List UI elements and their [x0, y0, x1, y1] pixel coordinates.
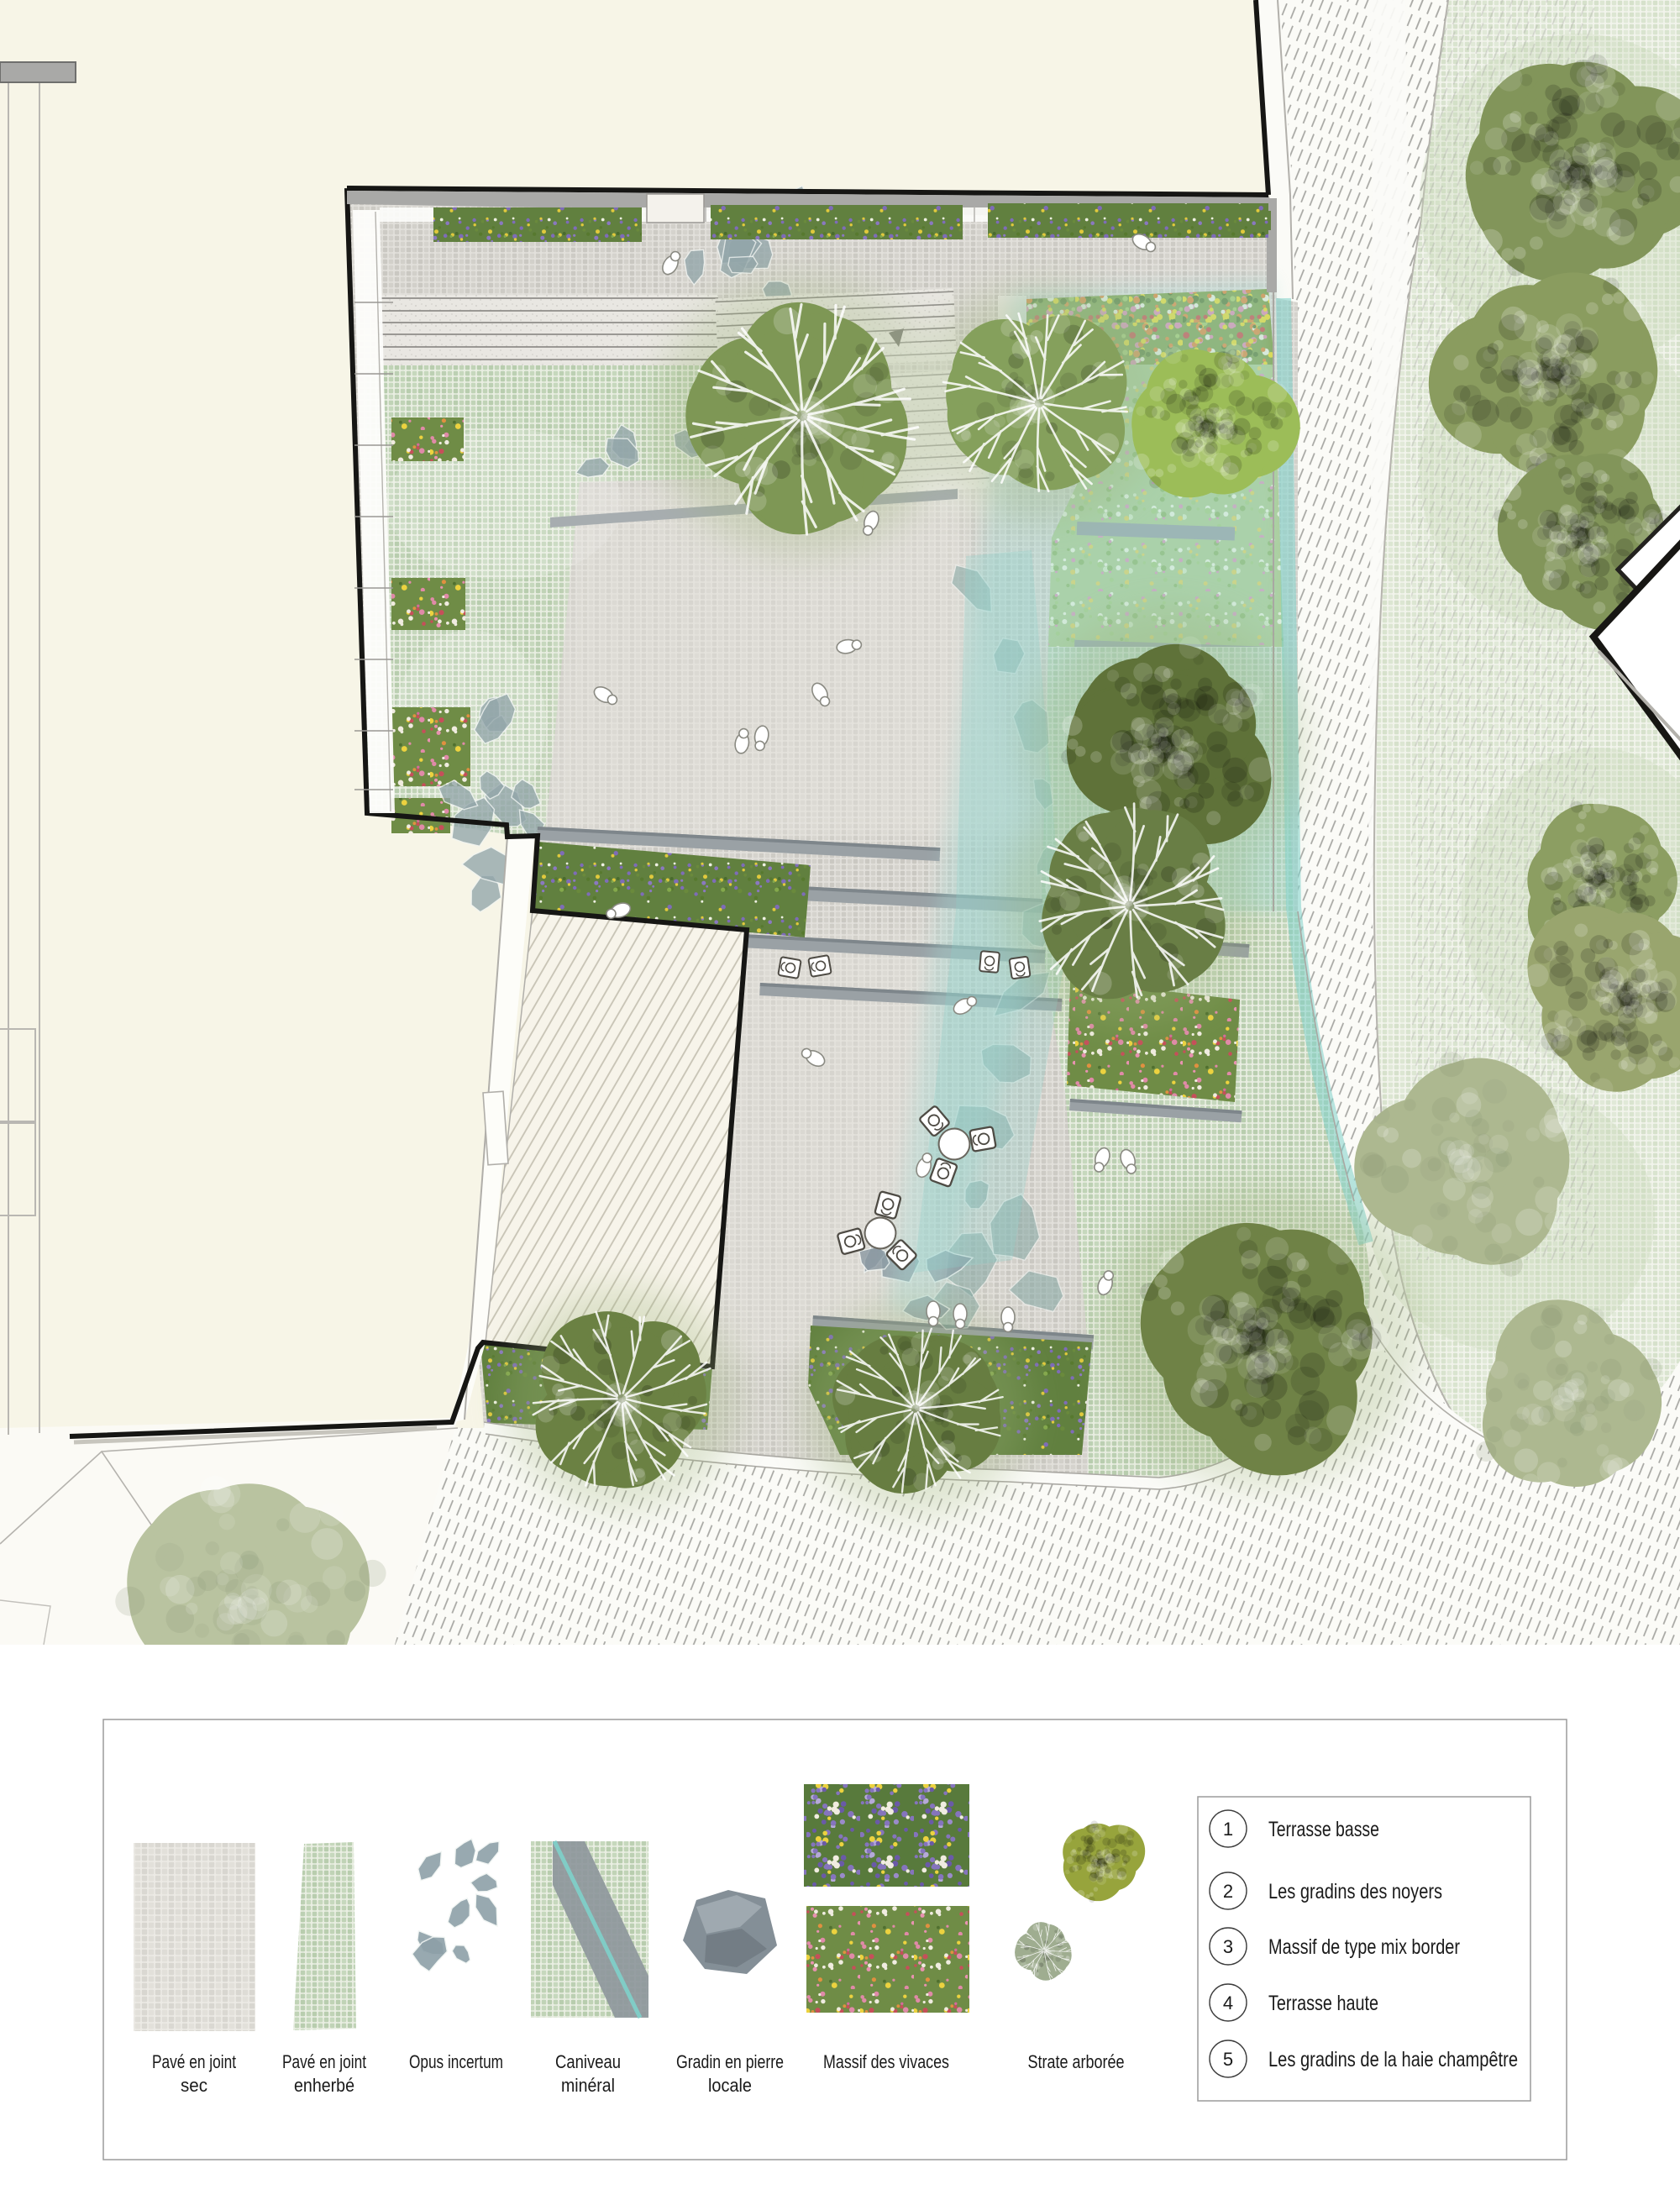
- svg-text:Terrasse basse: Terrasse basse: [1268, 1818, 1379, 1841]
- svg-text:Terrasse haute: Terrasse haute: [1268, 1992, 1378, 2015]
- svg-text:1: 1: [1223, 1819, 1233, 1840]
- svg-text:3: 3: [1223, 1936, 1233, 1957]
- svg-text:4: 4: [1223, 1992, 1233, 2013]
- svg-text:sec: sec: [181, 2075, 207, 2096]
- svg-text:5: 5: [1223, 2049, 1233, 2070]
- svg-text:Massif de type mix border: Massif de type mix border: [1268, 1935, 1460, 1959]
- svg-text:Pavé en joint: Pavé en joint: [282, 2051, 366, 2072]
- svg-text:Massif des vivaces: Massif des vivaces: [823, 2051, 949, 2072]
- svg-text:locale: locale: [708, 2075, 752, 2096]
- svg-text:Pavé en joint: Pavé en joint: [152, 2051, 236, 2072]
- svg-text:2: 2: [1223, 1881, 1233, 1902]
- svg-text:Opus incertum: Opus incertum: [409, 2051, 503, 2072]
- svg-text:minéral: minéral: [561, 2075, 615, 2096]
- svg-text:enherbé: enherbé: [294, 2075, 354, 2096]
- svg-text:Caniveau: Caniveau: [555, 2051, 621, 2072]
- svg-text:Gradin en pierre: Gradin en pierre: [676, 2051, 784, 2072]
- svg-text:Les gradins de la haie champêt: Les gradins de la haie champêtre: [1268, 2048, 1518, 2071]
- svg-text:Les gradins des noyers: Les gradins des noyers: [1268, 1880, 1442, 1903]
- svg-text:Strate arborée: Strate arborée: [1028, 2051, 1125, 2072]
